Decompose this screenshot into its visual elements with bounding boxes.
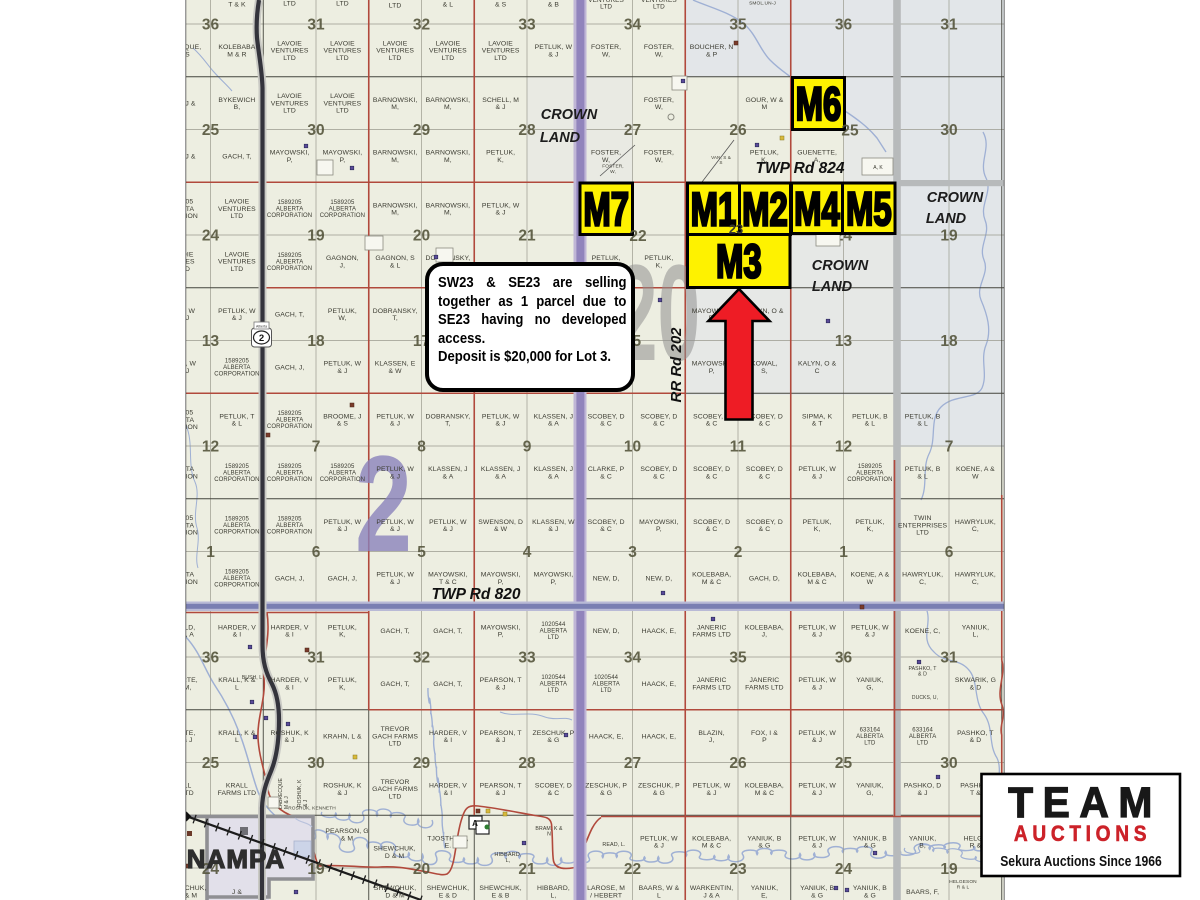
svg-text:29: 29 bbox=[413, 122, 431, 139]
svg-text:J &: J & bbox=[232, 889, 242, 896]
svg-text:26: 26 bbox=[729, 122, 747, 139]
svg-text:GACH, J,: GACH, J, bbox=[275, 575, 305, 582]
svg-text:33: 33 bbox=[518, 17, 536, 34]
svg-text:30: 30 bbox=[940, 755, 957, 772]
svg-text:LAND: LAND bbox=[926, 211, 967, 227]
svg-text:19: 19 bbox=[307, 228, 325, 245]
svg-text:M3: M3 bbox=[716, 235, 762, 288]
svg-text:36: 36 bbox=[202, 17, 220, 34]
svg-text:4: 4 bbox=[523, 544, 532, 561]
svg-text:2: 2 bbox=[355, 427, 412, 581]
svg-text:CROWN: CROWN bbox=[812, 258, 869, 274]
svg-text:Sekura Auctions Since 1966: Sekura Auctions Since 1966 bbox=[1000, 853, 1162, 870]
svg-text:12: 12 bbox=[202, 439, 219, 456]
svg-text:24: 24 bbox=[202, 228, 220, 245]
svg-text:25: 25 bbox=[202, 755, 220, 772]
svg-text:31: 31 bbox=[307, 17, 325, 34]
svg-text:8: 8 bbox=[417, 439, 426, 456]
svg-text:GACH, T,: GACH, T, bbox=[433, 681, 462, 688]
svg-text:BUSH, L: BUSH, L bbox=[242, 675, 262, 681]
svg-text:LTD: LTD bbox=[336, 0, 349, 7]
svg-text:JANERICFARMS LTD: JANERICFARMS LTD bbox=[745, 677, 784, 691]
svg-text:13: 13 bbox=[835, 333, 853, 350]
svg-text:GACH, T,: GACH, T, bbox=[222, 153, 251, 160]
svg-text:18: 18 bbox=[940, 333, 958, 350]
svg-text:A, K: A, K bbox=[873, 165, 883, 171]
svg-text:GACH, J,: GACH, J, bbox=[328, 575, 358, 582]
svg-text:23: 23 bbox=[729, 861, 747, 878]
svg-text:& S: & S bbox=[495, 1, 507, 8]
svg-text:LAND: LAND bbox=[540, 130, 581, 146]
svg-text:31: 31 bbox=[940, 650, 958, 667]
svg-text:20: 20 bbox=[413, 861, 430, 878]
svg-text:2: 2 bbox=[734, 544, 743, 561]
svg-text:21: 21 bbox=[518, 861, 536, 878]
svg-text:30: 30 bbox=[307, 122, 324, 139]
svg-text:1: 1 bbox=[839, 544, 848, 561]
svg-text:LTD: LTD bbox=[389, 2, 402, 9]
svg-text:& J: & J bbox=[303, 799, 309, 807]
svg-text:25: 25 bbox=[835, 755, 853, 772]
svg-text:JANERICFARMS LTD: JANERICFARMS LTD bbox=[692, 677, 731, 691]
svg-text:M & J: M & J bbox=[284, 796, 290, 809]
svg-text:21: 21 bbox=[518, 228, 536, 245]
svg-text:GACH, T,: GACH, T, bbox=[380, 628, 409, 635]
svg-text:19: 19 bbox=[307, 861, 325, 878]
svg-text:3: 3 bbox=[628, 544, 637, 561]
svg-text:LTD: LTD bbox=[283, 0, 296, 7]
svg-text:M6: M6 bbox=[796, 77, 842, 130]
svg-text:BAARS, F,: BAARS, F, bbox=[906, 889, 939, 896]
svg-text:30: 30 bbox=[307, 755, 324, 772]
svg-text:HAACK, E,: HAACK, E, bbox=[589, 734, 624, 741]
svg-text:GACH, J,: GACH, J, bbox=[275, 364, 305, 371]
svg-text:CROWN: CROWN bbox=[927, 190, 984, 206]
svg-text:GACH, D,: GACH, D, bbox=[749, 575, 780, 582]
svg-text:6: 6 bbox=[945, 544, 954, 561]
svg-text:GACH, T,: GACH, T, bbox=[433, 628, 462, 635]
svg-text:2: 2 bbox=[259, 333, 264, 344]
svg-text:24: 24 bbox=[835, 861, 853, 878]
svg-text:M7: M7 bbox=[583, 183, 629, 236]
svg-text:26: 26 bbox=[729, 755, 747, 772]
svg-text:NEW, D,: NEW, D, bbox=[593, 575, 620, 582]
svg-text:19: 19 bbox=[940, 228, 958, 245]
svg-text:NAMPA: NAMPA bbox=[187, 844, 285, 874]
svg-text:M2: M2 bbox=[742, 183, 788, 236]
svg-text:TWP Rd 820: TWP Rd 820 bbox=[432, 586, 521, 603]
svg-text:& B: & B bbox=[548, 1, 560, 8]
svg-text:11: 11 bbox=[730, 439, 747, 456]
svg-text:25: 25 bbox=[202, 122, 220, 139]
svg-text:T & K: T & K bbox=[228, 1, 246, 8]
svg-text:28: 28 bbox=[518, 122, 536, 139]
svg-text:KOENE, C,: KOENE, C, bbox=[905, 628, 940, 635]
svg-text:TWP Rd 824: TWP Rd 824 bbox=[756, 160, 845, 177]
svg-text:HAACK, E,: HAACK, E, bbox=[642, 734, 677, 741]
svg-text:31: 31 bbox=[940, 17, 958, 34]
svg-text:ROSHUK, KENNETH: ROSHUK, KENNETH bbox=[288, 806, 336, 812]
svg-text:35: 35 bbox=[729, 17, 747, 34]
svg-text:36: 36 bbox=[202, 650, 220, 667]
svg-text:M5: M5 bbox=[846, 182, 892, 235]
svg-text:28: 28 bbox=[518, 755, 536, 772]
svg-text:12: 12 bbox=[835, 439, 852, 456]
svg-text:30: 30 bbox=[940, 122, 957, 139]
svg-text:CROWN: CROWN bbox=[541, 107, 598, 123]
svg-text:23: 23 bbox=[729, 222, 743, 237]
svg-text:25: 25 bbox=[841, 123, 859, 140]
svg-text:RR Rd 202: RR Rd 202 bbox=[668, 327, 685, 403]
svg-text:19: 19 bbox=[940, 861, 958, 878]
svg-text:DUCKS, U,: DUCKS, U, bbox=[912, 695, 938, 701]
svg-text:GACH, T,: GACH, T, bbox=[275, 312, 304, 319]
svg-text:10: 10 bbox=[624, 439, 641, 456]
svg-text:NEW, D,: NEW, D, bbox=[646, 575, 673, 582]
svg-text:32: 32 bbox=[413, 650, 430, 667]
svg-text:TEAM: TEAM bbox=[1008, 778, 1162, 826]
svg-text:7: 7 bbox=[945, 439, 954, 456]
svg-text:13: 13 bbox=[202, 333, 220, 350]
svg-text:KRAHN, L &: KRAHN, L & bbox=[323, 734, 362, 741]
svg-text:18: 18 bbox=[307, 333, 325, 350]
svg-text:36: 36 bbox=[835, 17, 853, 34]
svg-text:32: 32 bbox=[413, 17, 430, 34]
svg-text:AUCTIONS: AUCTIONS bbox=[1014, 822, 1151, 847]
svg-text:NEW, D,: NEW, D, bbox=[593, 628, 620, 635]
svg-text:HAACK, E,: HAACK, E, bbox=[642, 681, 677, 688]
svg-text:36: 36 bbox=[835, 650, 853, 667]
svg-text:27: 27 bbox=[624, 755, 641, 772]
svg-text:34: 34 bbox=[624, 17, 642, 34]
svg-text:6: 6 bbox=[312, 544, 321, 561]
svg-text:LAROSE, M/ HEBERT: LAROSE, M/ HEBERT bbox=[587, 885, 625, 899]
svg-text:A: A bbox=[472, 819, 478, 828]
svg-text:5: 5 bbox=[417, 544, 426, 561]
svg-text:27: 27 bbox=[624, 122, 641, 139]
svg-text:29: 29 bbox=[413, 755, 431, 772]
svg-text:7: 7 bbox=[312, 439, 321, 456]
svg-text:JANERICFARMS LTD: JANERICFARMS LTD bbox=[692, 624, 731, 638]
svg-text:33: 33 bbox=[518, 650, 536, 667]
svg-text:HAACK, E,: HAACK, E, bbox=[642, 628, 677, 635]
svg-text:LAND: LAND bbox=[812, 279, 853, 295]
svg-text:READ, L.: READ, L. bbox=[602, 842, 625, 848]
svg-text:SMOL.UN-J: SMOL.UN-J bbox=[749, 1, 776, 7]
svg-text:31: 31 bbox=[307, 650, 325, 667]
svg-text:35: 35 bbox=[729, 650, 747, 667]
svg-text:9: 9 bbox=[523, 439, 532, 456]
svg-text:22: 22 bbox=[624, 861, 641, 878]
svg-text:20: 20 bbox=[413, 228, 430, 245]
svg-text:GACH, T,: GACH, T, bbox=[380, 681, 409, 688]
svg-text:Alberta: Alberta bbox=[256, 325, 267, 329]
svg-text:22: 22 bbox=[629, 228, 646, 245]
svg-text:& L: & L bbox=[443, 1, 454, 8]
svg-text:34: 34 bbox=[624, 650, 642, 667]
svg-text:1: 1 bbox=[206, 544, 215, 561]
svg-text:M4: M4 bbox=[794, 182, 840, 235]
